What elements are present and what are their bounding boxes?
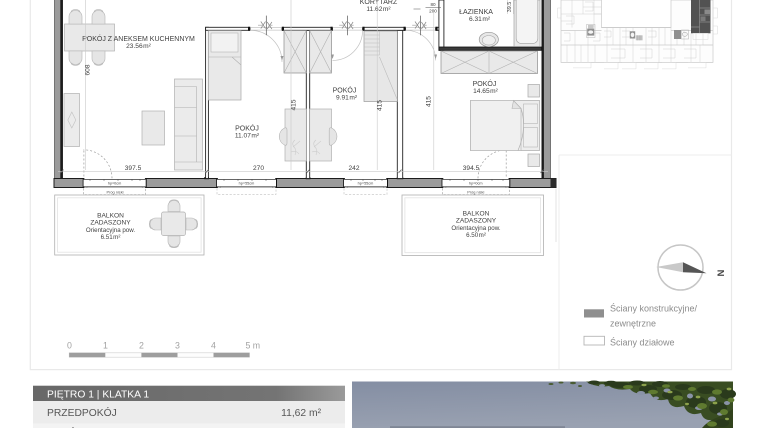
svg-text:242: 242 <box>348 165 359 172</box>
svg-text:Próg niski: Próg niski <box>106 189 123 194</box>
svg-text:N: N <box>715 270 726 277</box>
svg-text:11,62 m²: 11,62 m² <box>281 408 321 419</box>
svg-text:6.31 m²: 6.31 m² <box>469 16 491 23</box>
svg-text:Ściany działowe: Ściany działowe <box>610 337 675 348</box>
svg-text:11.07 m²: 11.07 m² <box>235 133 260 140</box>
svg-text:5 m: 5 m <box>245 341 260 351</box>
svg-text:PIĘTRO 1 | KLATKA 1: PIĘTRO 1 | KLATKA 1 <box>47 389 149 400</box>
svg-text:hp≈0cm: hp≈0cm <box>469 182 482 186</box>
svg-text:zewnętrzne: zewnętrzne <box>610 319 656 329</box>
svg-text:11.62 m²: 11.62 m² <box>366 6 391 13</box>
svg-text:0: 0 <box>67 341 72 351</box>
svg-text:39.5: 39.5 <box>507 2 513 13</box>
svg-text:ZADASZONY: ZADASZONY <box>90 220 131 227</box>
svg-text:3: 3 <box>175 341 180 351</box>
svg-text:1: 1 <box>103 341 108 351</box>
svg-text:394.5: 394.5 <box>463 165 480 172</box>
svg-text:397.5: 397.5 <box>125 165 142 172</box>
svg-text:200: 200 <box>429 9 437 14</box>
svg-text:POKÓJ Z ANEKSEM KUCHENNYM: POKÓJ Z ANEKSEM KUCHENNYM <box>82 34 195 43</box>
svg-text:Orientacyjna pow.: Orientacyjna pow. <box>451 225 500 232</box>
svg-text:80: 80 <box>430 2 436 7</box>
svg-text:POKÓJ: POKÓJ <box>473 79 497 88</box>
svg-text:BALKON: BALKON <box>463 211 490 218</box>
svg-text:ZADASZONY: ZADASZONY <box>456 218 497 225</box>
svg-text:Orientacyjna pow.: Orientacyjna pow. <box>86 227 135 234</box>
svg-text:2: 2 <box>139 341 144 351</box>
svg-text:PRZEDPOKÓJ: PRZEDPOKÓJ <box>47 406 117 419</box>
svg-text:23.56 m²: 23.56 m² <box>126 43 152 50</box>
svg-text:4: 4 <box>211 341 216 351</box>
svg-text:14.65 m²: 14.65 m² <box>473 88 499 95</box>
svg-text:6.51 m²: 6.51 m² <box>101 234 121 241</box>
svg-text:270: 270 <box>253 165 264 172</box>
svg-text:Ściany konstrukcyjne/: Ściany konstrukcyjne/ <box>610 303 698 314</box>
svg-text:hp=55cm: hp=55cm <box>239 182 255 186</box>
svg-text:6.50 m²: 6.50 m² <box>466 232 486 239</box>
svg-text:415: 415 <box>426 96 433 107</box>
svg-text:POKÓJ: POKÓJ <box>235 124 259 133</box>
svg-text:9.91 m²: 9.91 m² <box>336 95 358 102</box>
svg-text:BALKON: BALKON <box>97 213 124 220</box>
svg-text:POKÓJ: POKÓJ <box>333 86 357 95</box>
svg-text:hp≈0cm: hp≈0cm <box>108 182 121 186</box>
svg-text:608: 608 <box>85 64 92 75</box>
svg-text:Próg niski: Próg niski <box>467 189 484 194</box>
svg-text:415: 415 <box>376 100 383 111</box>
svg-text:hp=55cm: hp=55cm <box>358 182 374 186</box>
svg-text:415: 415 <box>290 99 297 110</box>
